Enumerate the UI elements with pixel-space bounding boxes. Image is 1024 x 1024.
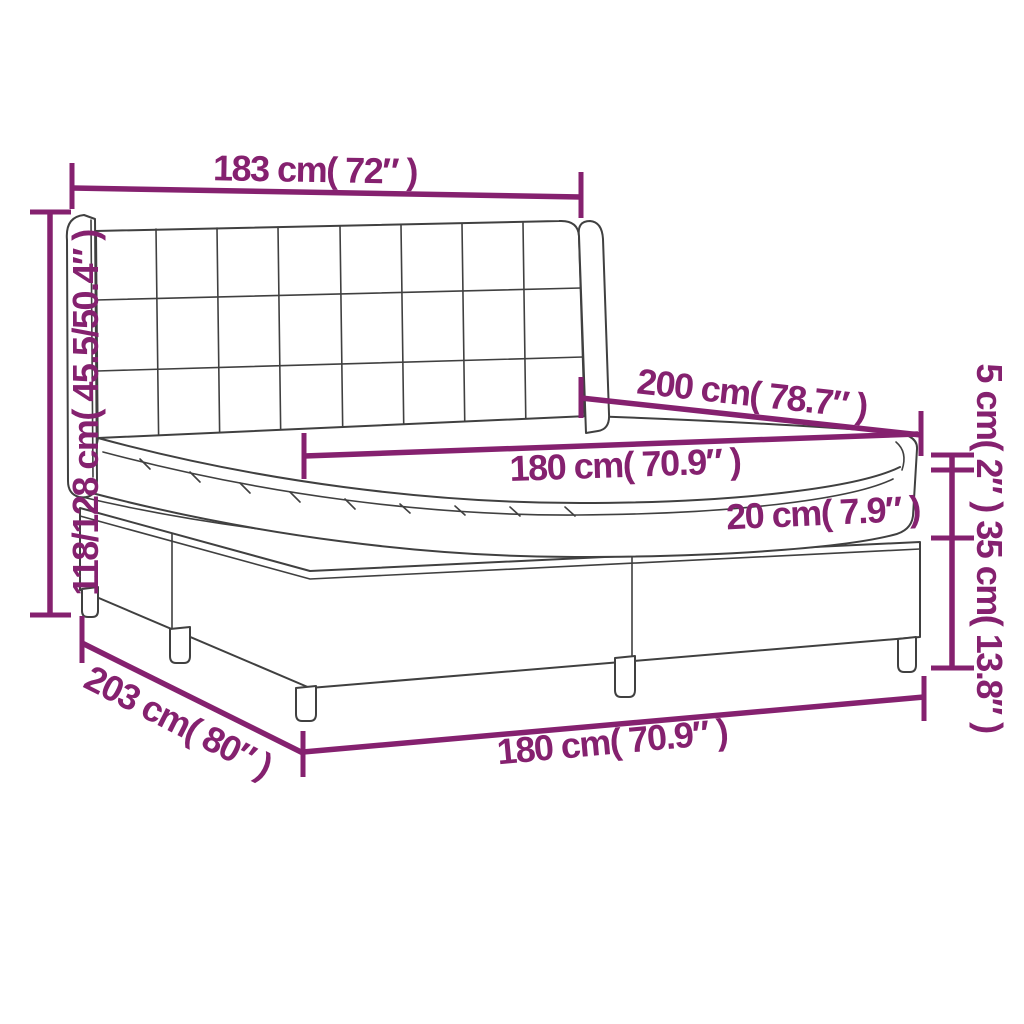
bed-dimension-diagram: 183 cm( 72″ ) 118/128 cm( 45.5/50.4″ ) 2… [0, 0, 1024, 1024]
dim-label-bed-height: 118/128 cm( 45.5/50.4″ ) [68, 230, 104, 596]
dim-label-mattress-width: 180 cm( 70.9″ ) [509, 443, 741, 487]
dim-label-topper-and-base-height: 5 cm( 2″ ) 35 cm( 13.8″ ) [971, 363, 1007, 732]
dim-label-headboard-width: 183 cm( 72″ ) [213, 150, 417, 190]
dim-topper-and-base-height [931, 455, 974, 668]
dim-label-mattress-height: 20 cm( 7.9″ ) [725, 491, 920, 536]
